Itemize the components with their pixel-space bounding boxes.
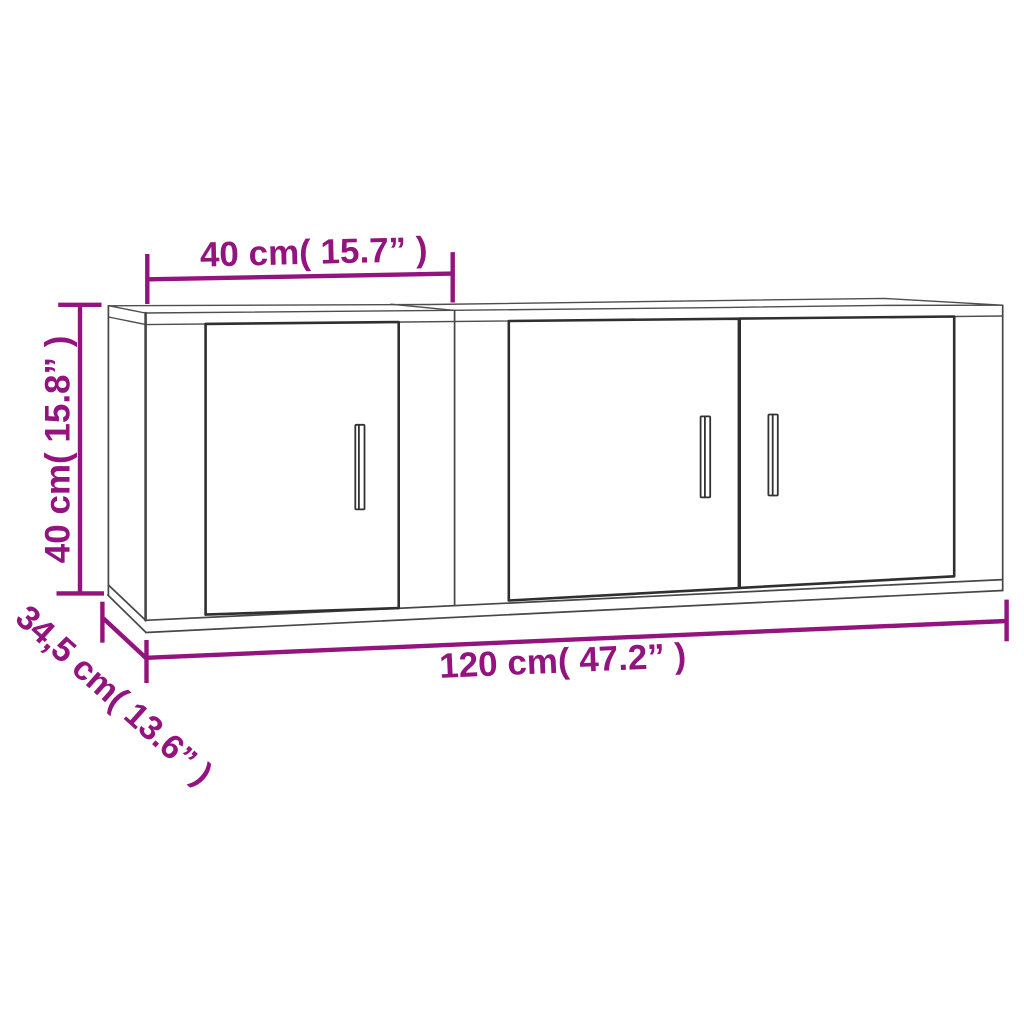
svg-text:40 cm( 15.7” ): 40 cm( 15.7” ): [199, 230, 428, 275]
svg-text:40 cm( 15.8” ): 40 cm( 15.8” ): [39, 336, 78, 564]
